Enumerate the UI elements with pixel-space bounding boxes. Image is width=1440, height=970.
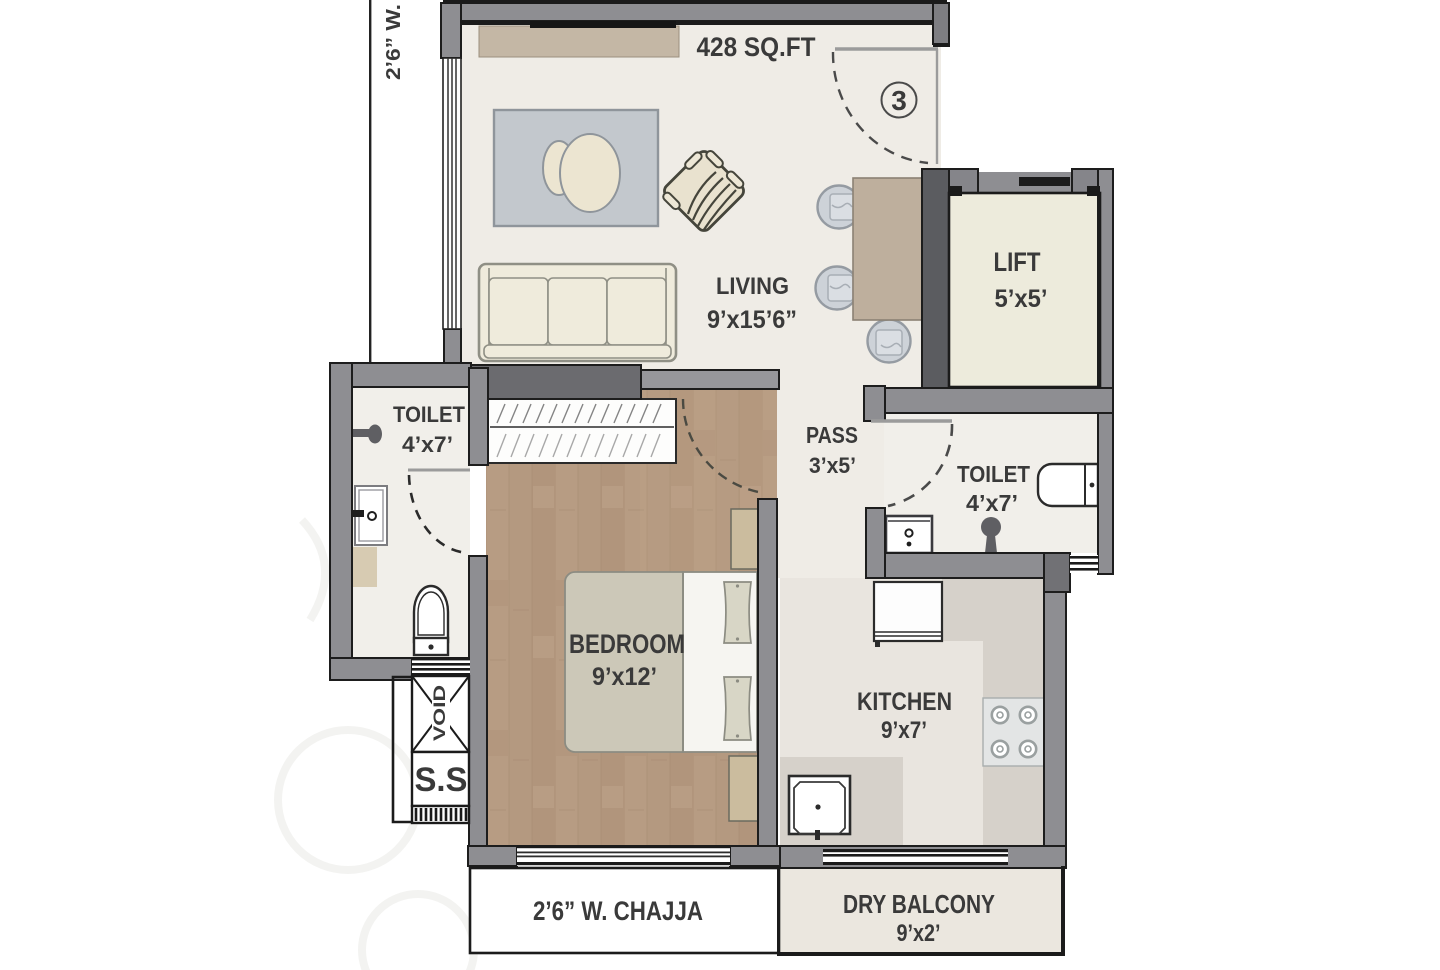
- svg-text:2’6” W.: 2’6” W.: [383, 4, 405, 80]
- svg-text:428 SQ.FT: 428 SQ.FT: [697, 32, 816, 62]
- svg-text:VOID: VOID: [430, 685, 449, 741]
- svg-text:4’x7’: 4’x7’: [402, 432, 453, 457]
- svg-text:LIVING: LIVING: [716, 273, 789, 300]
- svg-text:TOILET: TOILET: [393, 402, 466, 427]
- svg-text:5’x5’: 5’x5’: [995, 285, 1048, 313]
- svg-text:9’x2’: 9’x2’: [897, 920, 941, 947]
- svg-text:3: 3: [891, 85, 907, 116]
- svg-text:LIFT: LIFT: [994, 247, 1041, 277]
- svg-text:3’x5’: 3’x5’: [809, 453, 856, 478]
- svg-text:2’6” W. CHAJJA: 2’6” W. CHAJJA: [533, 896, 703, 926]
- svg-text:DRY BALCONY: DRY BALCONY: [843, 889, 995, 919]
- svg-text:TOILET: TOILET: [957, 461, 1030, 487]
- svg-text:KITCHEN: KITCHEN: [857, 688, 952, 716]
- svg-text:BEDROOM: BEDROOM: [569, 629, 685, 659]
- svg-text:9’x12’: 9’x12’: [592, 663, 657, 691]
- svg-text:9’x7’: 9’x7’: [881, 717, 927, 744]
- svg-text:4’x7’: 4’x7’: [966, 490, 1018, 516]
- svg-text:PASS: PASS: [806, 422, 858, 448]
- svg-text:9’x15’6”: 9’x15’6”: [707, 306, 797, 334]
- svg-text:S.S: S.S: [415, 761, 468, 799]
